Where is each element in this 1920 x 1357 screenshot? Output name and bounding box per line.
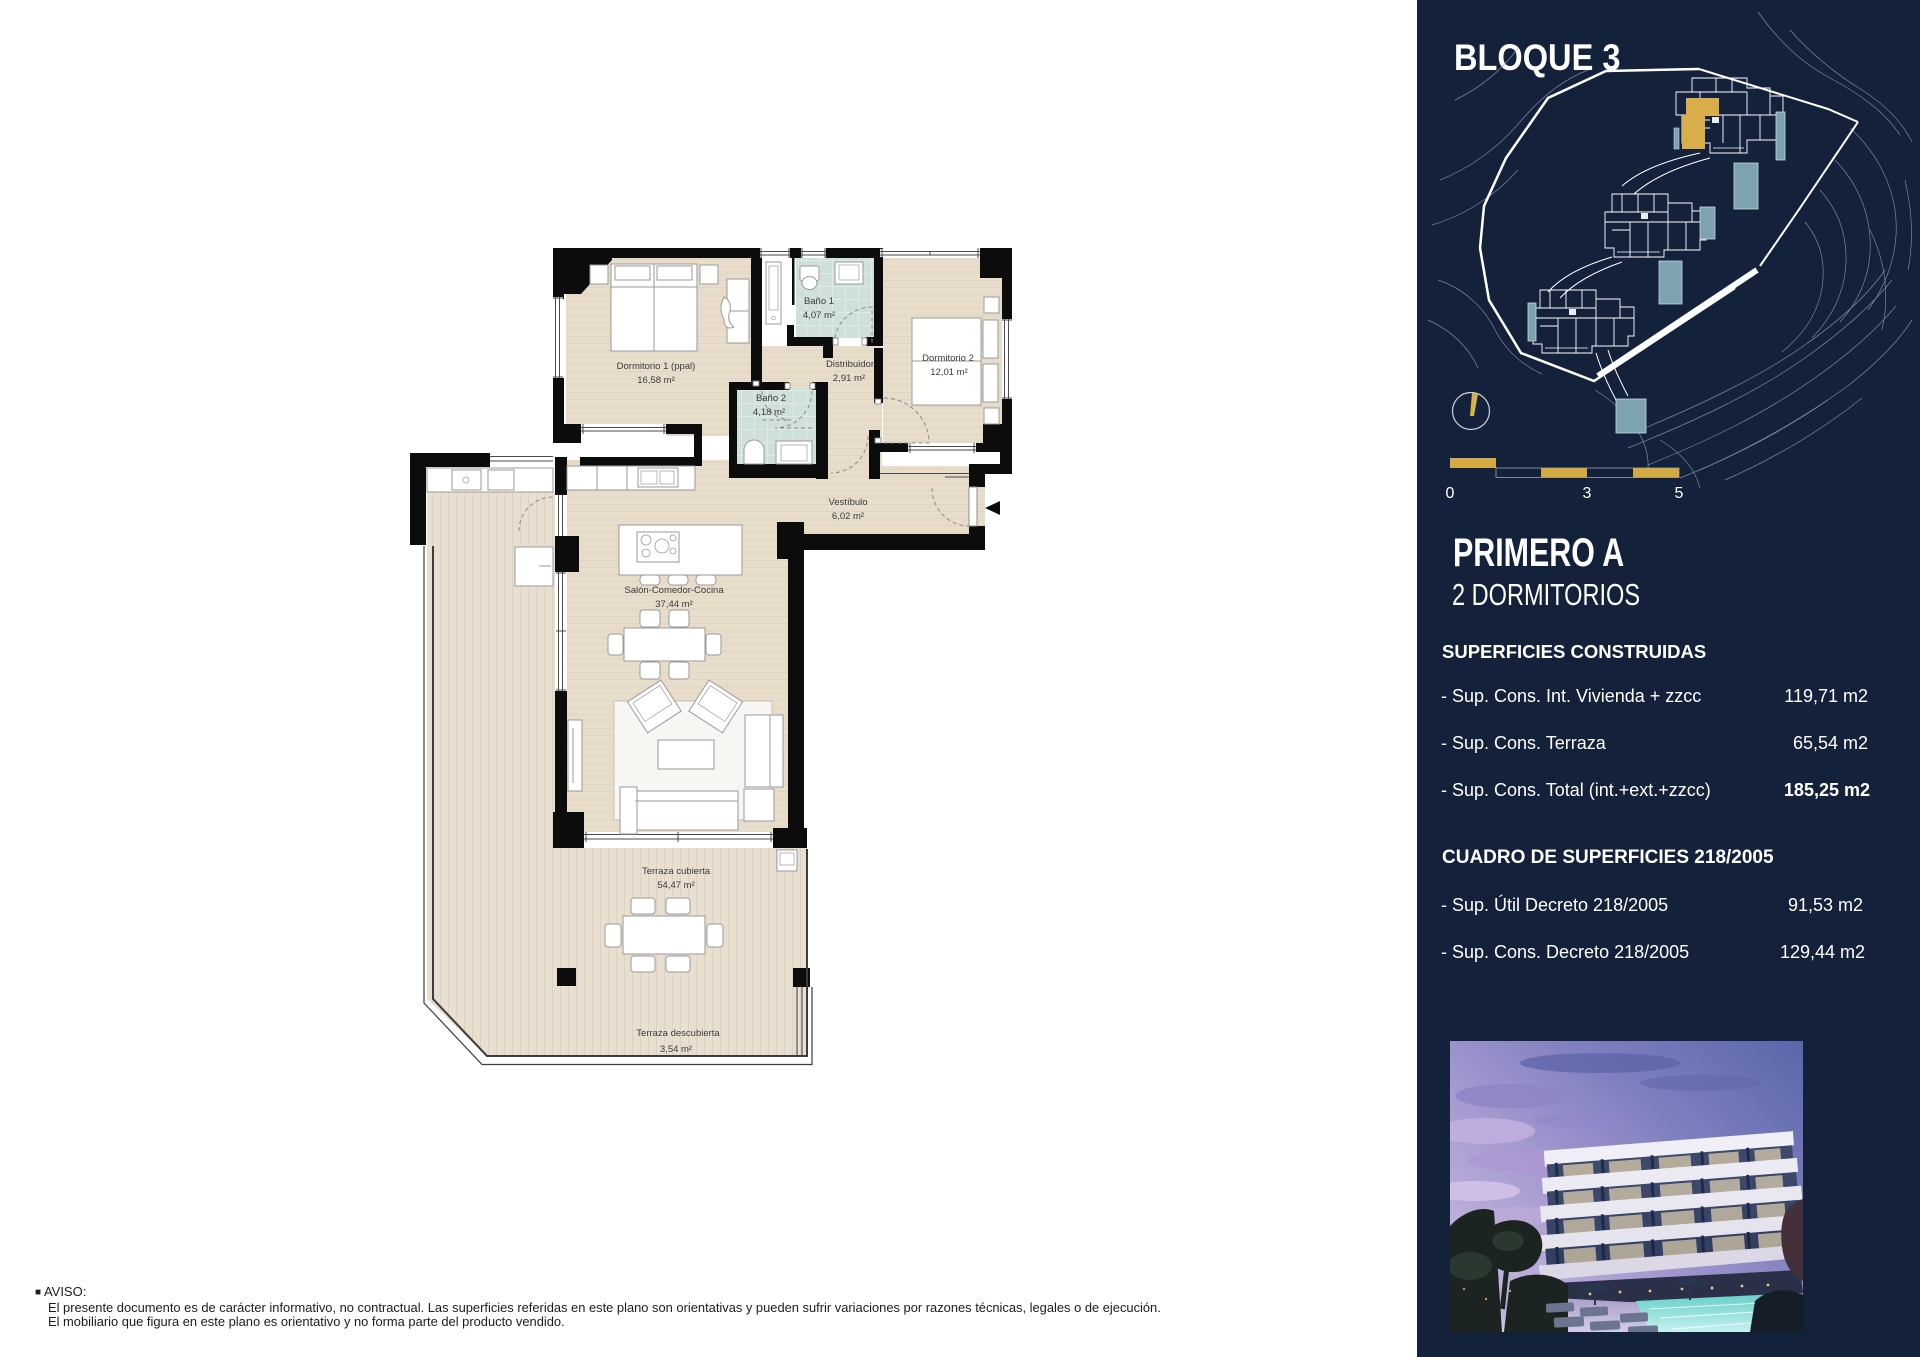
svg-text:Salón-Comedor-Cocina: Salón-Comedor-Cocina — [624, 585, 724, 596]
svg-text:Dormitorio 1 (ppal): Dormitorio 1 (ppal) — [617, 361, 696, 372]
svg-text:12,01 m²: 12,01 m² — [930, 367, 968, 378]
svg-text:3,54 m²: 3,54 m² — [660, 1044, 692, 1055]
svg-text:4,18 m²: 4,18 m² — [753, 407, 785, 418]
svg-text:Baño 2: Baño 2 — [756, 393, 786, 404]
svg-text:37,44 m²: 37,44 m² — [655, 599, 693, 610]
svg-text:Terraza descubierta: Terraza descubierta — [636, 1028, 720, 1039]
svg-text:Terraza cubierta: Terraza cubierta — [642, 866, 711, 877]
svg-text:0: 0 — [1446, 485, 1455, 502]
svg-text:5: 5 — [1675, 485, 1684, 502]
svg-text:3: 3 — [1583, 485, 1592, 502]
svg-text:2,91 m²: 2,91 m² — [833, 373, 865, 384]
svg-text:Baño 1: Baño 1 — [804, 296, 834, 307]
svg-text:54,47 m²: 54,47 m² — [657, 880, 695, 891]
svg-text:Distribuidor: Distribuidor — [826, 359, 874, 370]
svg-text:4,07 m²: 4,07 m² — [803, 310, 835, 321]
svg-text:Dormitorio 2: Dormitorio 2 — [922, 353, 974, 364]
svg-text:16,58 m²: 16,58 m² — [637, 375, 675, 386]
svg-text:6,02 m²: 6,02 m² — [832, 511, 864, 522]
svg-text:Vestíbulo: Vestíbulo — [828, 497, 867, 508]
